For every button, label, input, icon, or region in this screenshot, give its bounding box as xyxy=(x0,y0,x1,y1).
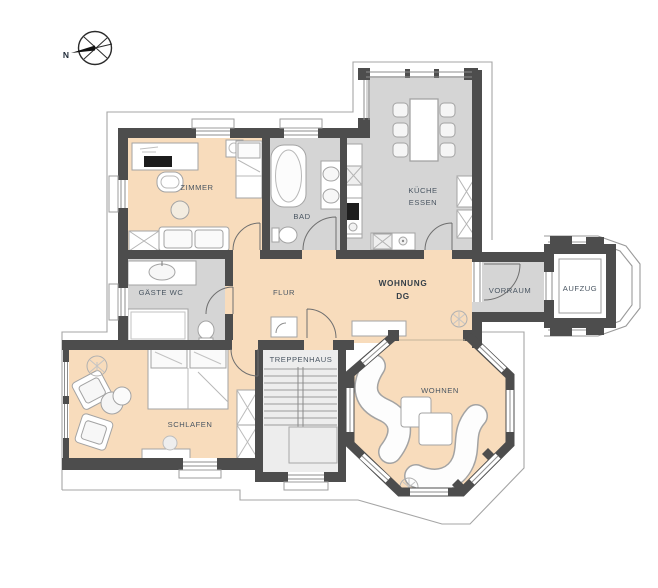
north-label: N xyxy=(63,50,69,60)
floorplan-canvas: N ZIMMER BAD KÜCHE ESSEN GÄSTE WC FLUR W… xyxy=(0,0,658,588)
side-table xyxy=(113,387,131,405)
room-label-kueche-2: ESSEN xyxy=(409,198,437,207)
room-label-wohnen: WOHNEN xyxy=(421,386,459,395)
dining-table xyxy=(410,99,438,161)
dining-chair xyxy=(440,103,455,117)
dining-chair xyxy=(393,123,408,137)
ceiling-lamp xyxy=(163,436,177,450)
room-label-bad: BAD xyxy=(293,212,310,221)
dining-chair xyxy=(393,143,408,157)
floorplan-svg: N ZIMMER BAD KÜCHE ESSEN GÄSTE WC FLUR W… xyxy=(0,0,658,588)
hall-cabinet xyxy=(271,317,297,337)
dining-chair xyxy=(440,123,455,137)
room-label-wohnung-2: DG xyxy=(396,292,410,301)
wc-tank xyxy=(272,228,279,242)
room-label-gaeste-wc: GÄSTE WC xyxy=(139,288,184,297)
room-label-schlafen: SCHLAFEN xyxy=(168,420,213,429)
room-label-zimmer: ZIMMER xyxy=(180,183,213,192)
wc-bowl xyxy=(279,227,297,243)
round-table xyxy=(171,201,189,219)
room-label-aufzug: AUFZUG xyxy=(563,284,597,293)
dining-chair xyxy=(393,103,408,117)
dining-chair xyxy=(440,143,455,157)
computer xyxy=(144,156,172,167)
shower xyxy=(128,309,188,342)
room-label-treppenhaus: TREPPENHAUS xyxy=(270,355,333,364)
floor-flur xyxy=(230,259,472,343)
floor-treppenhaus xyxy=(263,348,338,472)
room-label-flur: FLUR xyxy=(273,288,295,297)
north-compass-icon: N xyxy=(63,32,112,65)
coffee-table xyxy=(419,413,452,445)
room-label-wohnung-1: WOHNUNG xyxy=(379,279,428,288)
room-label-vorraum: VORRAUM xyxy=(489,286,532,295)
room-label-kueche-1: KÜCHE xyxy=(408,186,437,195)
wc-bowl xyxy=(198,321,214,339)
